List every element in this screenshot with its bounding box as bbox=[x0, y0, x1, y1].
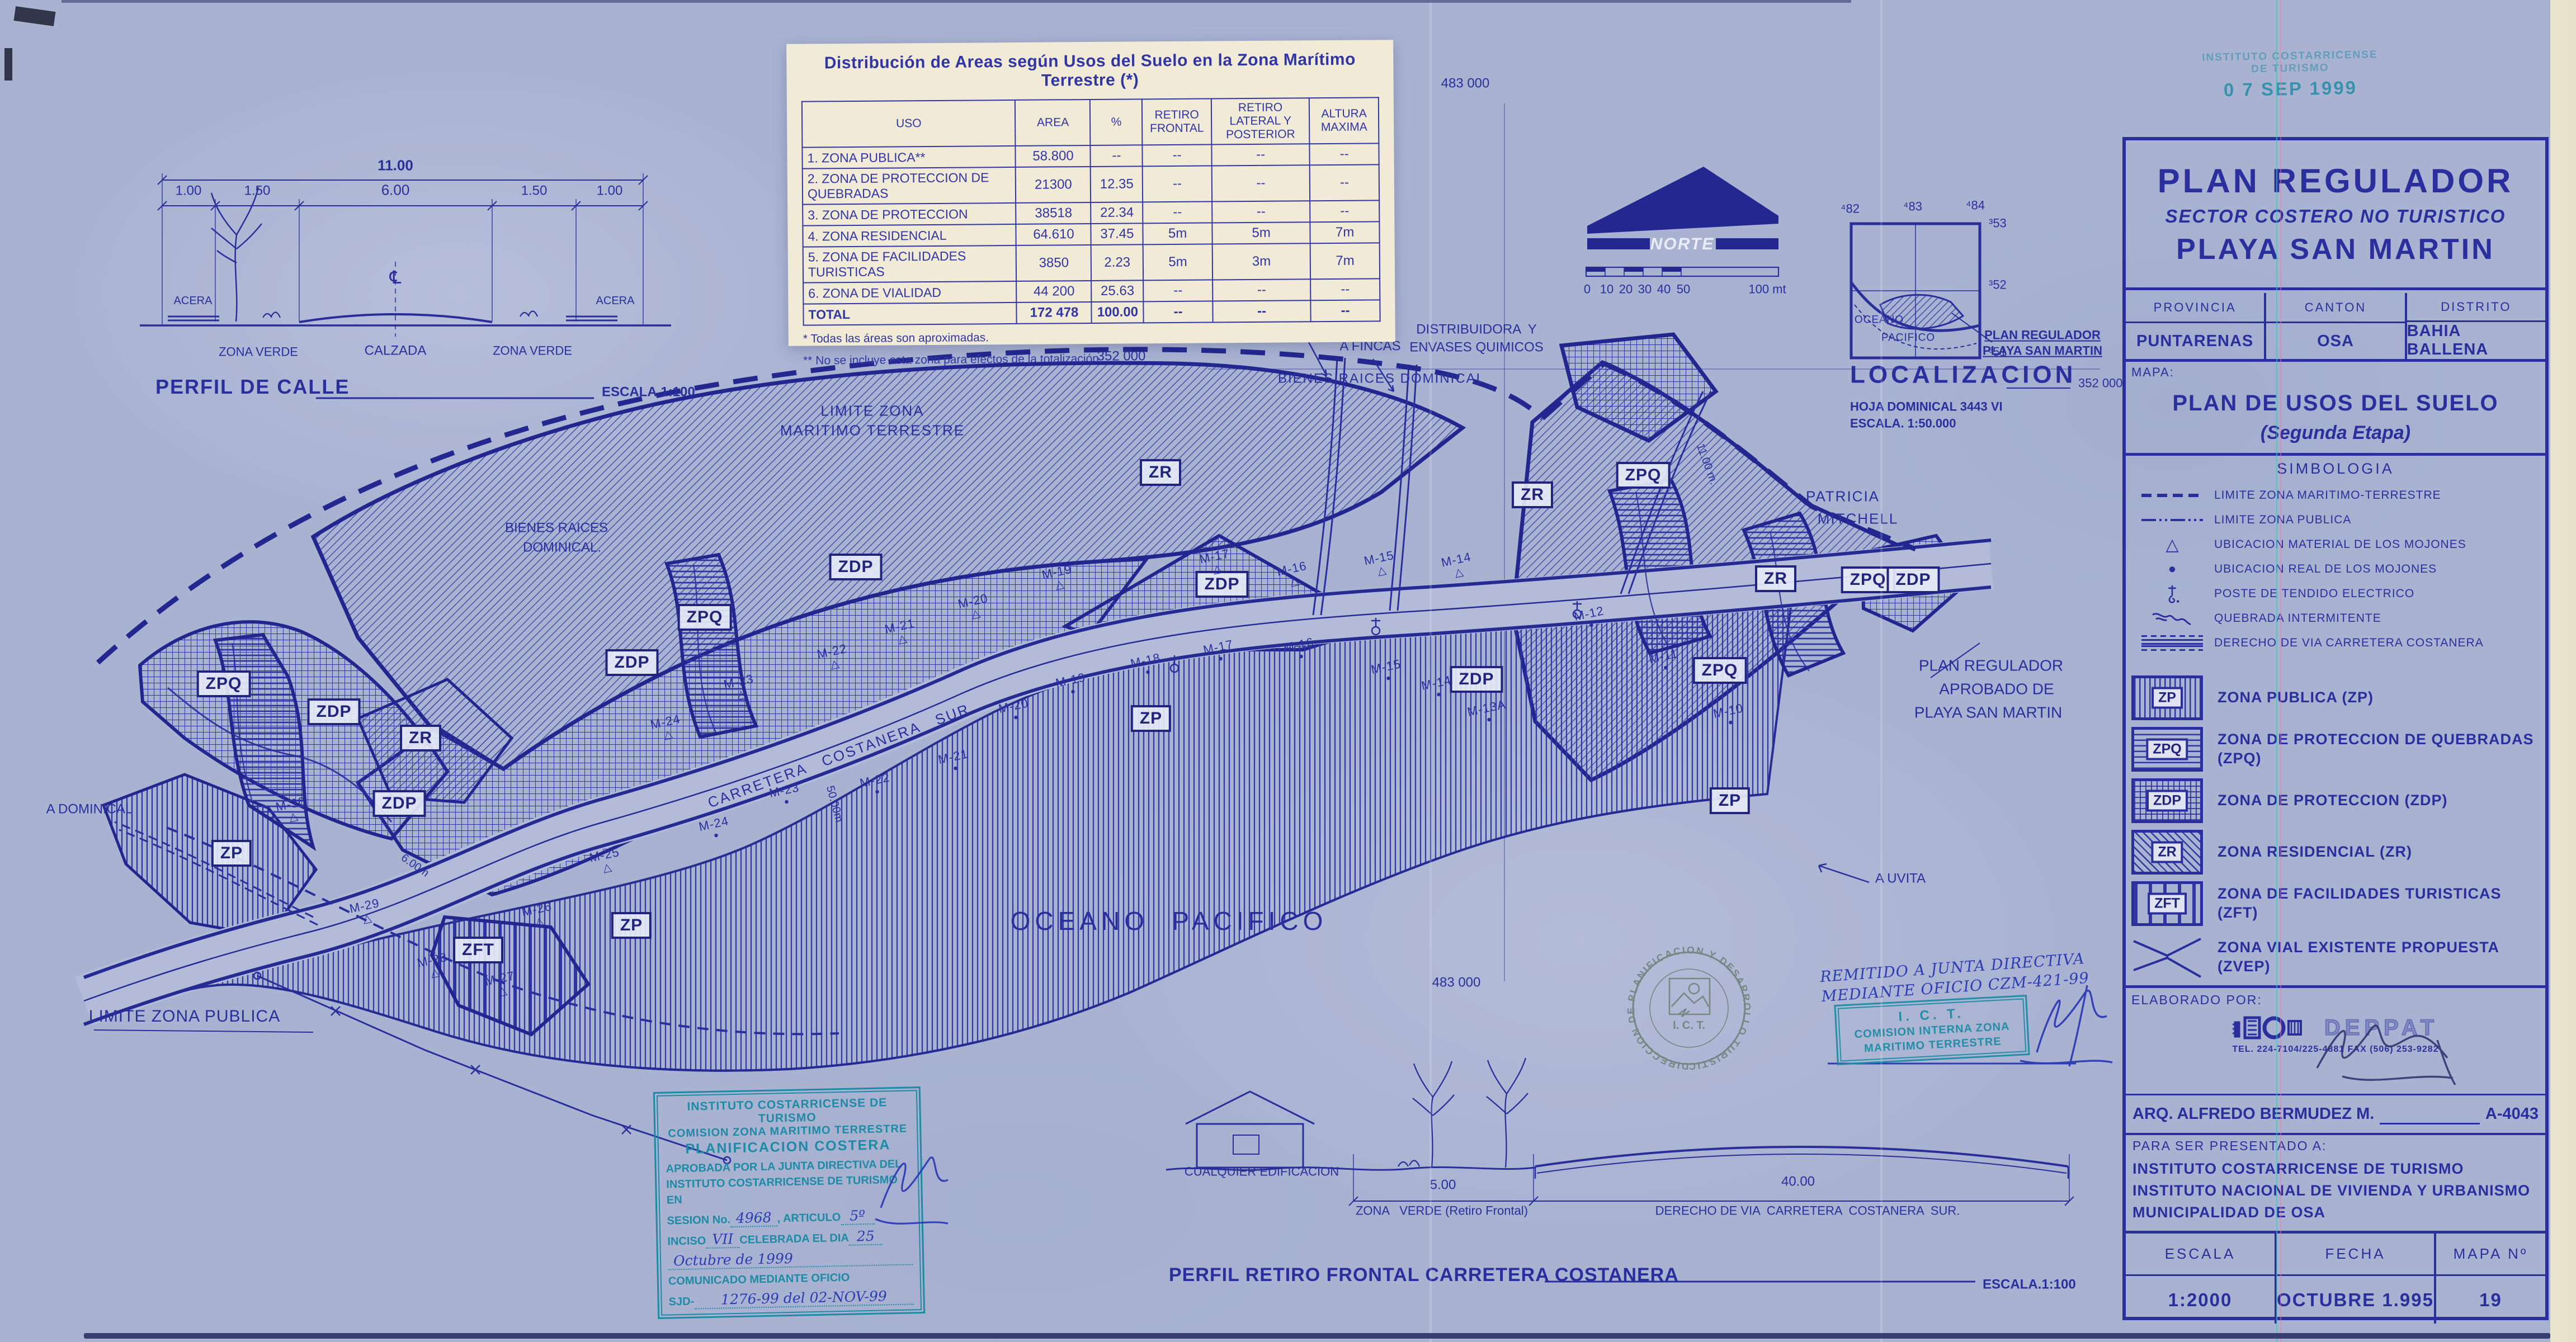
area-cell: 25.63 bbox=[1092, 281, 1144, 303]
scalebar-tick: 20 bbox=[1619, 283, 1633, 297]
grid-coord: 483 000 bbox=[1432, 976, 1481, 991]
acera-label: ACERA bbox=[174, 295, 213, 307]
area-cell: 172 478 bbox=[1017, 302, 1092, 324]
zone-code: ZR bbox=[2151, 842, 2183, 863]
squiggle-icon bbox=[2130, 610, 2214, 627]
simbologia-label: LIMITE ZONA PUBLICA bbox=[2214, 513, 2351, 527]
zone-swatch-zr: ZR bbox=[2131, 830, 2203, 875]
provincia-label: PROVINCIA bbox=[2126, 293, 2264, 323]
presentado-line: MUNICIPALIDAD DE OSA bbox=[2132, 1202, 2539, 1223]
mapa-no-label: MAPA Nº bbox=[2436, 1234, 2545, 1276]
scan-line-teal bbox=[2276, 0, 2277, 1342]
patricia-mitchell: MITCHELL bbox=[1818, 511, 1899, 527]
fold-line bbox=[1429, 0, 1432, 1342]
north-label: NORTE bbox=[1650, 235, 1714, 254]
scan-line-pink bbox=[2280, 0, 2281, 1342]
distrito-label: DISTRITO bbox=[2407, 293, 2545, 322]
loc-callout: PLAN REGULADOR bbox=[1984, 329, 2101, 343]
escala-value: 1:2000 bbox=[2126, 1276, 2275, 1324]
area-cell: 3. ZONA DE PROTECCION bbox=[803, 203, 1016, 226]
loc-ocean: PACIFICO bbox=[1881, 332, 1935, 343]
bienes-raices: BIENES RAICES DOMINICAL bbox=[1278, 372, 1485, 387]
area-cell: 3850 bbox=[1016, 245, 1091, 281]
area-cell: -- bbox=[1212, 301, 1311, 323]
canton-col: CANTON OSA bbox=[2266, 293, 2407, 359]
zone-label: ZONA VIAL EXISTENTE PROPUESTA (ZVEP) bbox=[2218, 938, 2540, 976]
approval-signature bbox=[864, 1135, 954, 1230]
mapa-no-col: MAPA Nº 19 bbox=[2436, 1234, 2545, 1324]
scan-mark bbox=[4, 48, 12, 81]
area-cell: -- bbox=[1143, 202, 1212, 224]
plan-area-name: PLAYA SAN MARTIN bbox=[2176, 233, 2495, 266]
presentado-label: PARA SER PRESENTADO A: bbox=[2132, 1138, 2539, 1154]
zone-legend-item: ZRZONA RESIDENCIAL (ZR) bbox=[2126, 826, 2545, 878]
loc-ocean: OCEANO bbox=[1855, 314, 1904, 325]
inciso-value: VII bbox=[706, 1231, 740, 1249]
loc-grid: ³53 bbox=[1989, 217, 2007, 231]
grid-coord: 483 000 bbox=[1441, 77, 1490, 92]
ict-circular-seal: DIRECCION DE PLANIFICACION Y DESARROLLO … bbox=[1625, 944, 1753, 1072]
simbologia-item: DERECHO DE VIA CARRETERA COSTANERA bbox=[2126, 631, 2545, 655]
loc-grid: ³52 bbox=[1989, 278, 2007, 292]
map-title: PLAN DE USOS DEL SUELO bbox=[2126, 391, 2545, 416]
area-cell: 7m bbox=[1310, 222, 1380, 244]
paper-edge-top bbox=[62, 0, 1851, 3]
oceano-pacifico: OCEANO PACIFICO bbox=[1011, 907, 1328, 936]
dim-seg: 5.00 bbox=[1430, 1178, 1456, 1193]
distribuidora: DISTRIBUIDORA Y bbox=[1416, 323, 1537, 338]
zone-label: ZONA DE PROTECCION DE QUEBRADAS (ZPQ) bbox=[2218, 730, 2540, 768]
loc-callout: PLAYA SAN MARTIN bbox=[1983, 344, 2102, 358]
area-cell: 38518 bbox=[1016, 202, 1091, 224]
scalebar-unit: 100 mt bbox=[1748, 283, 1786, 297]
dim-note: 50.00m bbox=[824, 785, 846, 824]
escala-label: ESCALA bbox=[2126, 1234, 2275, 1276]
area-cell: 44 200 bbox=[1017, 281, 1092, 303]
area-cell: -- bbox=[1212, 166, 1310, 202]
dim-seg: 1.00 bbox=[176, 184, 202, 199]
dia-value: 25 bbox=[848, 1228, 883, 1246]
fecha-label: FECHA bbox=[2277, 1234, 2434, 1276]
dashdot-icon bbox=[2130, 519, 2214, 521]
zone-legend-item: ZPZONA PUBLICA (ZP) bbox=[2126, 672, 2545, 724]
zone-label: ZONA RESIDENCIAL (ZR) bbox=[2218, 843, 2412, 862]
architect-row: ARQ. ALFREDO BERMUDEZ M. A-4043 bbox=[2126, 1094, 2545, 1133]
zone-code: ZFT bbox=[2148, 893, 2187, 915]
provincia-value: PUNTARENAS bbox=[2126, 323, 2264, 359]
presentado-section: PARA SER PRESENTADO A: INSTITUTO COSTARR… bbox=[2126, 1133, 2545, 1231]
frontal-profile-scale: ESCALA.1:100 bbox=[1983, 1278, 2076, 1293]
simbologia-label: UBICACION MATERIAL DE LOS MOJONES bbox=[2214, 537, 2466, 551]
signature-rule bbox=[2380, 1104, 2480, 1124]
zone-label: ZONA PUBLICA (ZP) bbox=[2218, 688, 2374, 707]
road-icon bbox=[2130, 633, 2214, 653]
remit-signature bbox=[2003, 963, 2115, 1069]
dim-seg: 1.00 bbox=[597, 184, 623, 199]
area-cell: -- bbox=[1212, 201, 1310, 223]
architect-signature bbox=[2309, 1007, 2465, 1090]
approval-line: COMUNICADO MEDIANTE OFICIO bbox=[668, 1268, 913, 1289]
dot-icon: ● bbox=[2130, 561, 2214, 577]
area-cell: -- bbox=[1091, 145, 1143, 167]
area-cell: -- bbox=[1212, 280, 1311, 301]
limite-zp: LIMITE ZONA PUBLICA bbox=[89, 1007, 280, 1026]
simbologia-item: POSTE DE TENDIDO ELECTRICO bbox=[2126, 582, 2545, 606]
zona-verde-retiro: ZONA VERDE (Retiro Frontal) bbox=[1356, 1204, 1528, 1218]
calzada-label: CALZADA bbox=[365, 344, 427, 359]
area-cell: 5m bbox=[1143, 244, 1212, 281]
distrito-col: DISTRITO BAHIA BALLENA bbox=[2407, 293, 2545, 359]
simbologia-item: △UBICACION MATERIAL DE LOS MOJONES bbox=[2126, 532, 2545, 557]
fold-line bbox=[1880, 0, 1883, 1342]
fecha-handwritten: Octubre de 1999 bbox=[668, 1248, 913, 1270]
dim-note: 6.00m bbox=[399, 852, 431, 880]
dim-seg: 40.00 bbox=[1781, 1175, 1815, 1190]
zvep-fork-icon bbox=[2131, 931, 2203, 984]
scalebar-tick: 40 bbox=[1657, 283, 1671, 297]
area-cell: 5m bbox=[1143, 223, 1212, 245]
grid-coord: 352 000 bbox=[2078, 377, 2123, 391]
area-cell: -- bbox=[1310, 165, 1379, 201]
loc-grid: ⁴83 bbox=[1903, 200, 1922, 214]
presentado-line: INSTITUTO NACIONAL DE VIVIENDA Y URBANIS… bbox=[2132, 1180, 2539, 1202]
title-block-footer: ESCALA 1:2000 FECHA OCTUBRE 1.995 MAPA N… bbox=[2126, 1231, 2545, 1324]
zone-legend-item: ZDPZONA DE PROTECCION (ZDP) bbox=[2126, 775, 2545, 826]
zone-swatch-zp: ZP bbox=[2131, 675, 2203, 720]
plan-aprobado: PLAYA SAN MARTIN bbox=[1914, 703, 2063, 721]
area-col-header: ALTURA MAXIMA bbox=[1309, 97, 1379, 144]
presentado-line: INSTITUTO COSTARRICENSE DE TURISMO bbox=[2132, 1158, 2539, 1180]
simbologia-title: SIMBOLOGIA bbox=[2126, 460, 2545, 478]
title-block: PLAN REGULADOR SECTOR COSTERO NO TURISTI… bbox=[2122, 137, 2549, 1320]
loc-scale: ESCALA. 1:50.000 bbox=[1850, 417, 1956, 431]
bienes-raices: DOMINICAL. bbox=[523, 541, 601, 556]
dim-seg: 1.50 bbox=[244, 184, 271, 199]
deppat-logo-icon bbox=[2233, 1012, 2316, 1043]
escala-col: ESCALA 1:2000 bbox=[2126, 1234, 2277, 1324]
area-cell: TOTAL bbox=[803, 303, 1017, 325]
plan-aprobado: APROBADO DE bbox=[1939, 680, 2054, 697]
zone-code: ZP bbox=[2152, 687, 2183, 709]
zone-label: ZONA DE FACILIDADES TURISTICAS (ZFT) bbox=[2218, 885, 2540, 923]
area-cell: 4. ZONA RESIDENCIAL bbox=[803, 224, 1016, 247]
blueprint-sheet: ZPQZDPZRZDPZPZFTZPZPQZDPZDPZRZDPZPZDPZRZ… bbox=[0, 0, 2550, 1342]
sesion-label: SESION No. bbox=[667, 1213, 730, 1227]
plan-aprobado: PLAN REGULADOR bbox=[1919, 656, 2063, 674]
area-col-header: RETIRO FRONTAL bbox=[1142, 98, 1211, 145]
area-row: TOTAL172 478100.00------ bbox=[803, 300, 1380, 325]
area-cell: -- bbox=[1143, 145, 1212, 167]
map-name-section: MAPA: PLAN DE USOS DEL SUELO (Segunda Et… bbox=[2126, 359, 2545, 453]
fecha-col: FECHA OCTUBRE 1.995 bbox=[2277, 1234, 2436, 1324]
simbologia-label: QUEBRADA INTERMITENTE bbox=[2214, 611, 2381, 625]
canton-label: CANTON bbox=[2266, 293, 2404, 323]
triangle-icon: △ bbox=[2130, 535, 2214, 555]
svg-text:DIRECCION DE PLANIFICACION Y D: DIRECCION DE PLANIFICACION Y DESARROLLO … bbox=[1620, 935, 1753, 1072]
area-table-title: Distribución de Areas según Usos del Sue… bbox=[801, 50, 1379, 92]
area-cell: 21300 bbox=[1016, 167, 1091, 203]
area-cell: 5m bbox=[1212, 223, 1310, 244]
loc-grid: ⁴82 bbox=[1841, 202, 1860, 216]
area-row: 5. ZONA DE FACILIDADES TURISTICAS38502.2… bbox=[803, 243, 1380, 283]
architect-name: ARQ. ALFREDO BERMUDEZ M. bbox=[2132, 1105, 2374, 1123]
title-block-header: PLAN REGULADOR SECTOR COSTERO NO TURISTI… bbox=[2126, 140, 2545, 290]
bienes-raices: BIENES RAICES bbox=[505, 521, 608, 536]
scalebar-tick: 0 bbox=[1584, 283, 1591, 297]
canton-value: OSA bbox=[2266, 323, 2404, 359]
area-col-header: USO bbox=[802, 100, 1016, 148]
area-col-header: AREA bbox=[1015, 100, 1091, 146]
frontal-profile-title: PERFIL RETIRO FRONTAL CARRETERA COSTANER… bbox=[1169, 1264, 1679, 1286]
architect-code: A-4043 bbox=[2485, 1105, 2539, 1123]
dim-seg: 6.00 bbox=[381, 182, 410, 198]
area-cell: 1. ZONA PUBLICA** bbox=[802, 146, 1016, 169]
simbologia-item: QUEBRADA INTERMITENTE bbox=[2126, 606, 2545, 631]
area-cell: 58.800 bbox=[1016, 145, 1091, 167]
area-cell: -- bbox=[1310, 144, 1379, 166]
area-cell: 5. ZONA DE FACILIDADES TURISTICAS bbox=[803, 245, 1017, 283]
acera-label: ACERA bbox=[596, 295, 635, 307]
area-col-header: RETIRO LATERAL Y POSTERIOR bbox=[1211, 98, 1310, 145]
dashbold-icon bbox=[2130, 494, 2214, 497]
area-table: USOAREA%RETIRO FRONTALRETIRO LATERAL Y P… bbox=[801, 97, 1381, 326]
area-cell: -- bbox=[1311, 300, 1380, 322]
area-distribution-panel: Distribución de Areas según Usos del Sue… bbox=[786, 40, 1395, 346]
area-col-header: % bbox=[1090, 99, 1142, 145]
provincia-col: PROVINCIA PUNTARENAS bbox=[2126, 293, 2266, 359]
zone-legend-item: ZONA VIAL EXISTENTE PROPUESTA (ZVEP) bbox=[2126, 929, 2545, 985]
zone-code: ZDP bbox=[2146, 790, 2188, 812]
mapa-label: MAPA: bbox=[2131, 365, 2174, 380]
dim-note: 11.00 m. bbox=[1693, 442, 1720, 486]
loc-sheet: HOJA DOMINICAL 3443 VI bbox=[1850, 400, 2003, 414]
seal-center-text: I. C. T. bbox=[1673, 1019, 1705, 1032]
simbologia-label: POSTE DE TENDIDO ELECTRICO bbox=[2214, 587, 2414, 601]
dim-seg: 1.50 bbox=[521, 184, 548, 199]
paper-edge-bottom bbox=[84, 1333, 2550, 1339]
area-cell: 22.34 bbox=[1091, 202, 1143, 224]
cualquier-edificacion: CUALQUIER EDIFICACION bbox=[1185, 1165, 1339, 1179]
plan-subtitle: SECTOR COSTERO NO TURISTICO bbox=[2165, 206, 2506, 227]
ict-comision-stamp: I. C. T. COMISION INTERNA ZONA MARITIMO … bbox=[1834, 995, 2030, 1065]
simbologia-label: UBICACION REAL DE LOS MOJONES bbox=[2214, 562, 2437, 576]
fecha-value: OCTUBRE 1.995 bbox=[2277, 1276, 2434, 1324]
map-subtitle: (Segunda Etapa) bbox=[2126, 422, 2545, 444]
simbologia-label: LIMITE ZONA MARITIMO-TERRESTRE bbox=[2214, 488, 2441, 502]
area-cell: -- bbox=[1143, 280, 1212, 302]
area-cell: 12.35 bbox=[1091, 167, 1143, 203]
mapa-no-value: 19 bbox=[2436, 1276, 2545, 1324]
zone-swatch-zpq: ZPQ bbox=[2131, 727, 2203, 772]
oficio-value: 1276-99 del 02-NOV-99 bbox=[694, 1287, 914, 1309]
zone-legend: ZPZONA PUBLICA (ZP)ZPQZONA DE PROTECCION… bbox=[2126, 672, 2545, 985]
scalebar-tick: 30 bbox=[1638, 283, 1652, 297]
inciso-label: INCISO bbox=[667, 1235, 706, 1248]
pole-icon bbox=[2130, 583, 2214, 604]
limite-zmt: MARITIMO TERRESTRE bbox=[780, 422, 965, 438]
scalebar-tick: 50 bbox=[1677, 283, 1690, 297]
area-cell: -- bbox=[1143, 166, 1212, 202]
zone-swatch-zdp: ZDP bbox=[2131, 778, 2203, 823]
dim-total: 11.00 bbox=[378, 157, 413, 173]
patricia-mitchell: PATRICIA bbox=[1806, 488, 1880, 504]
zona-verde-label: ZONA VERDE bbox=[493, 344, 572, 358]
derecho-via: DERECHO DE VIA CARRETERA COSTANERA SUR. bbox=[1655, 1204, 1960, 1218]
area-cell: -- bbox=[1144, 301, 1213, 323]
zone-label: ZONA DE PROTECCION (ZDP) bbox=[2218, 791, 2448, 810]
sjd-label: SJD- bbox=[668, 1296, 694, 1309]
simbologia-item: LIMITE ZONA PUBLICA bbox=[2126, 508, 2545, 532]
area-cell: 2.23 bbox=[1091, 245, 1143, 281]
loc-grid: ⁴84 bbox=[1966, 199, 1985, 213]
zone-legend-item: ZFTZONA DE FACILIDADES TURISTICAS (ZFT) bbox=[2126, 878, 2545, 929]
celebrada-label: CELEBRADA EL DIA bbox=[739, 1232, 849, 1247]
zone-legend-item: ZPQZONA DE PROTECCION DE QUEBRADAS (ZPQ) bbox=[2126, 724, 2545, 775]
simbologia-item: ●UBICACION REAL DE LOS MOJONES bbox=[2126, 557, 2545, 582]
articulo-label: , ARTICULO bbox=[777, 1211, 841, 1225]
area-cell: 2. ZONA DE PROTECCION DE QUEBRADAS bbox=[803, 167, 1016, 205]
centerline-mark: ℄ bbox=[390, 268, 402, 288]
admin-divisions: PROVINCIA PUNTARENAS CANTON OSA DISTRITO… bbox=[2126, 293, 2545, 359]
area-cell: 7m bbox=[1310, 243, 1380, 280]
street-profile-scale: ESCALA.1:100 bbox=[602, 385, 695, 400]
area-row: 2. ZONA DE PROTECCION DE QUEBRADAS213001… bbox=[803, 165, 1379, 205]
sesion-value: 4968 bbox=[730, 1209, 777, 1227]
area-cell: 37.45 bbox=[1091, 224, 1143, 245]
a-dominical: A DOMINICAL bbox=[46, 802, 133, 818]
ict-date-stamp: INSTITUTO COSTARRICENSE DE TURISMO 0 7 S… bbox=[2158, 48, 2422, 102]
simbologia-section: SIMBOLOGIA LIMITE ZONA MARITIMO-TERRESTR… bbox=[2126, 453, 2545, 672]
area-cell: 3m bbox=[1212, 244, 1311, 280]
area-cell: 64.610 bbox=[1016, 224, 1091, 245]
distrito-value: BAHIA BALLENA bbox=[2407, 322, 2545, 359]
paper-edge-right bbox=[2550, 0, 2576, 1342]
zone-swatch-zft: ZFT bbox=[2131, 881, 2203, 926]
scalebar-tick: 10 bbox=[1600, 283, 1613, 297]
carretera-label: CARRETERA COSTANERA SUR bbox=[706, 701, 973, 811]
seal-ring-text: DIRECCION DE PLANIFICACION Y DESARROLLO … bbox=[1620, 935, 1753, 1072]
a-uvita: A UVITA bbox=[1875, 872, 1926, 887]
loc-title: LOCALIZACION bbox=[1850, 361, 2076, 388]
area-cell: 6. ZONA DE VIALIDAD bbox=[803, 281, 1017, 304]
area-cell: 100.00 bbox=[1092, 302, 1144, 324]
area-cell: -- bbox=[1310, 279, 1380, 301]
street-profile-title: PERFIL DE CALLE bbox=[155, 376, 350, 398]
simbologia-item: LIMITE ZONA MARITIMO-TERRESTRE bbox=[2126, 483, 2545, 508]
plan-title: PLAN REGULADOR bbox=[2158, 162, 2514, 200]
limite-zmt: LIMITE ZONA bbox=[820, 403, 924, 419]
simbologia-label: DERECHO DE VIA CARRETERA COSTANERA bbox=[2214, 636, 2484, 650]
zona-verde-label: ZONA VERDE bbox=[219, 346, 298, 360]
area-cell: -- bbox=[1310, 201, 1379, 223]
zone-code: ZPQ bbox=[2146, 739, 2188, 760]
area-cell: -- bbox=[1211, 144, 1310, 166]
